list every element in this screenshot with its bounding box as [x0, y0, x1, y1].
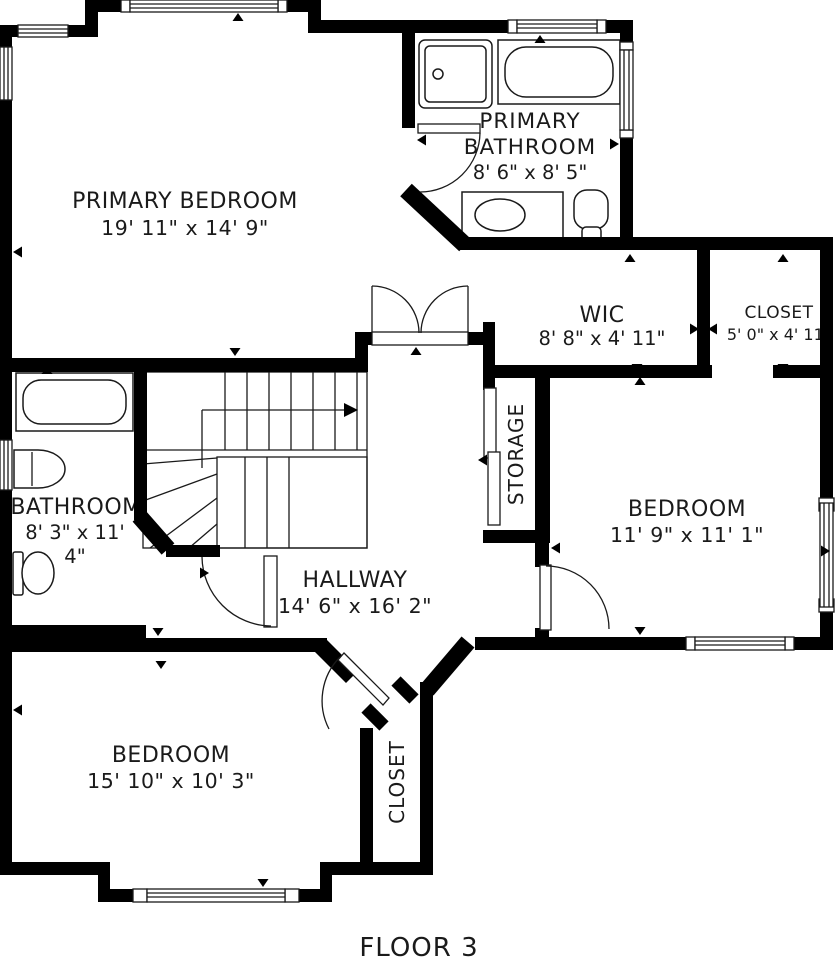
bathtub	[498, 40, 620, 104]
primary-bedroom-label: PRIMARY BEDROOM 19' 11" x 14' 9"	[72, 189, 298, 240]
pedestal-sink	[14, 450, 65, 488]
primary-bathroom-name-1: PRIMARY	[479, 109, 580, 134]
closet-upper-dims: 5' 0" x 4' 11"	[727, 325, 831, 344]
window-top-main	[121, 0, 287, 12]
window-left-upper	[0, 47, 12, 100]
floor-plan-drawing: PRIMARY BEDROOM 19' 11" x 14' 9" PRIMARY…	[0, 0, 839, 961]
window-primary-bath-top	[508, 20, 606, 33]
floor-plan-page: PRIMARY BEDROOM 19' 11" x 14' 9" PRIMARY…	[0, 0, 839, 961]
hallway-label: HALLWAY 14' 6" x 16' 2"	[278, 568, 432, 618]
primary-bathroom-dims: 8' 6" x 8' 5"	[473, 161, 588, 184]
bedroom-right-dims: 11' 9" x 11' 1"	[610, 523, 764, 547]
toilet-2	[13, 552, 54, 595]
closet-lower-label: CLOSET	[385, 740, 409, 824]
bedroom-right-label: BEDROOM 11' 9" x 11' 1"	[610, 497, 764, 547]
bathroom-name: BATHROOM	[10, 495, 141, 520]
wic-dims: 8' 8" x 4' 11"	[538, 327, 665, 350]
bathroom-dims-1: 8' 3" x 11'	[25, 521, 124, 544]
primary-bathroom-label: PRIMARY BATHROOM 8' 6" x 8' 5"	[464, 109, 596, 184]
staircase	[143, 372, 367, 548]
bathroom-dims-2: 4"	[64, 545, 85, 568]
double-door-primary-bedroom	[372, 286, 468, 345]
shower	[419, 40, 492, 108]
primary-bedroom-name: PRIMARY BEDROOM	[72, 189, 298, 214]
primary-bathroom-name-2: BATHROOM	[464, 135, 596, 160]
bedroom-lower-name: BEDROOM	[112, 743, 230, 768]
window-bathroom-left	[0, 440, 12, 490]
floor-title: FLOOR 3	[359, 933, 478, 961]
storage-label: STORAGE	[504, 403, 528, 505]
door-hallway-bathroom	[202, 556, 277, 627]
primary-bedroom-dims: 19' 11" x 14' 9"	[101, 216, 269, 240]
closet-upper-label: CLOSET 5' 0" x 4' 11"	[727, 303, 831, 344]
bedroom-lower-label: BEDROOM 15' 10" x 10' 3"	[87, 743, 255, 793]
wic-label: WIC 8' 8" x 4' 11"	[538, 303, 665, 350]
window-top-left	[18, 25, 68, 37]
toilet	[574, 190, 608, 241]
window-bedroom-bottom	[686, 637, 794, 650]
closet-upper-name: CLOSET	[744, 303, 813, 323]
sink-vanity	[462, 192, 563, 238]
bedroom-lower-dims: 15' 10" x 10' 3"	[87, 769, 255, 793]
hallway-dims: 14' 6" x 16' 2"	[278, 594, 432, 618]
bathtub-2	[16, 373, 133, 431]
window-bay-bottom	[133, 889, 299, 902]
door-bedroom-right	[540, 565, 609, 630]
wic-name: WIC	[579, 303, 624, 328]
hallway-name: HALLWAY	[303, 568, 408, 593]
window-primary-bath-right	[620, 42, 633, 138]
bedroom-right-name: BEDROOM	[628, 497, 746, 522]
